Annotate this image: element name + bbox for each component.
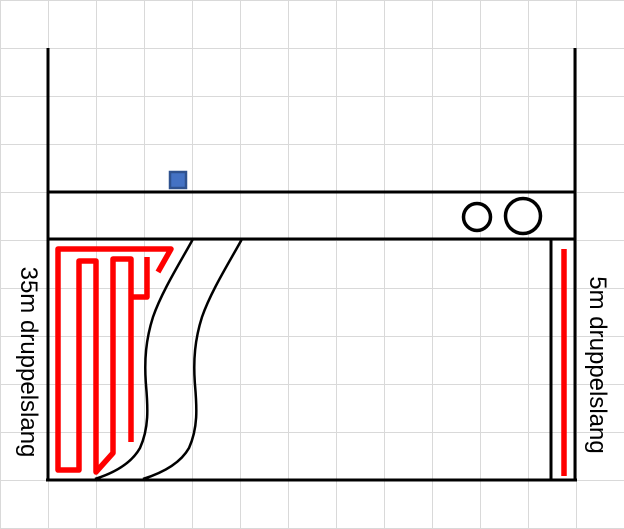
label-5m-druppelslang: 5m druppelslang [585, 276, 609, 453]
spreadsheet-grid-canvas: 35m druppelslang 5m druppelslang [0, 0, 624, 529]
irrigation-diagram [0, 0, 624, 529]
small-circle-marker [464, 204, 491, 231]
blue-square-marker [170, 172, 186, 188]
path-curve-left [95, 239, 193, 479]
path-curve-right [143, 239, 242, 479]
large-circle-marker [506, 199, 541, 234]
label-35m-druppelslang: 35m druppelslang [16, 267, 40, 458]
drip-hose-35m [58, 249, 171, 472]
